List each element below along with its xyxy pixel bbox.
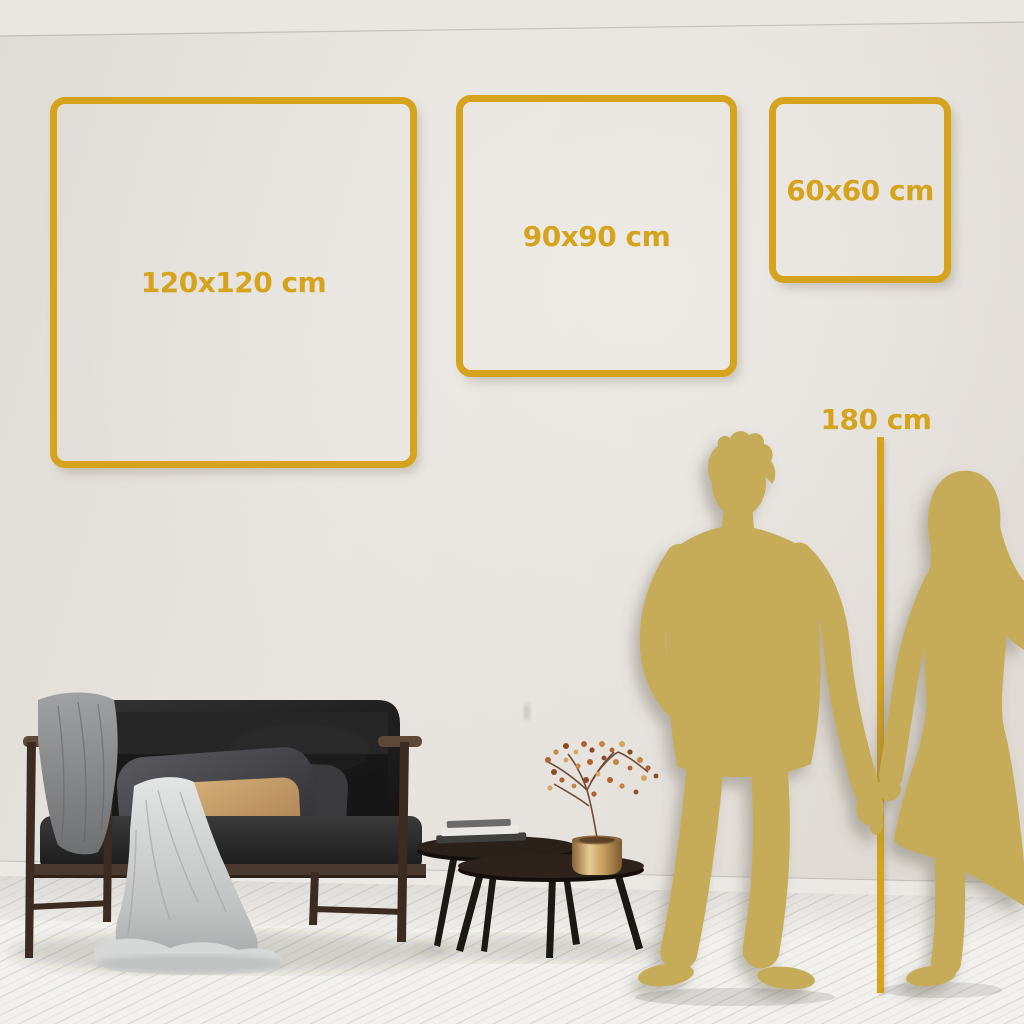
woman-silhouette: [877, 471, 1024, 989]
man-silhouette: [637, 431, 884, 992]
size-guide-image: 120x120 cm 90x90 cm 60x60 cm 180 cm: [0, 0, 1024, 1024]
couple-silhouettes: [0, 0, 1024, 1024]
